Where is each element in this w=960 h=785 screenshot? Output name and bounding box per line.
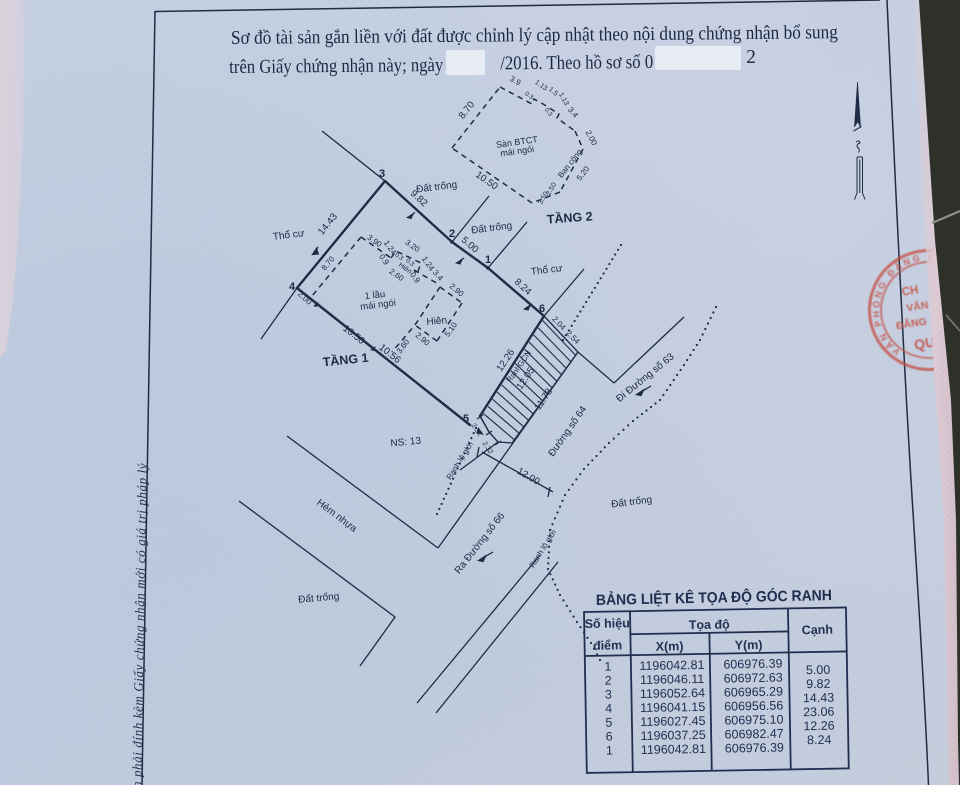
svg-text:6: 6 <box>539 303 545 315</box>
svg-text:/2016. Theo hồ sơ số 0: /2016. Theo hồ sơ số 0 <box>500 52 653 74</box>
svg-text:Y(m): Y(m) <box>735 638 763 652</box>
svg-text:1196037.25: 1196037.25 <box>640 728 705 743</box>
svg-text:Số hiệu: Số hiệu <box>585 616 630 631</box>
svg-text:5: 5 <box>605 716 612 730</box>
svg-text:Hiên: Hiên <box>426 315 447 328</box>
svg-text:23.06: 23.06 <box>803 705 835 720</box>
svg-text:12.26: 12.26 <box>803 719 835 734</box>
svg-text:điểm: điểm <box>593 638 622 653</box>
svg-text:1196042.81: 1196042.81 <box>639 658 704 673</box>
svg-text:1196027.45: 1196027.45 <box>640 714 705 729</box>
svg-text:606976.39: 606976.39 <box>723 657 782 672</box>
svg-text:1196052.64: 1196052.64 <box>640 686 705 701</box>
svg-text:1: 1 <box>606 744 613 758</box>
svg-text:606956.56: 606956.56 <box>724 699 783 714</box>
svg-text:4: 4 <box>605 702 612 716</box>
svg-text:5.00: 5.00 <box>806 663 831 677</box>
svg-text:6: 6 <box>606 730 613 744</box>
svg-text:X(m): X(m) <box>656 639 684 653</box>
svg-text:1196046.11: 1196046.11 <box>640 672 704 687</box>
svg-text:606972.63: 606972.63 <box>724 671 783 686</box>
svg-text:3: 3 <box>605 688 612 702</box>
svg-text:606976.39: 606976.39 <box>725 741 784 756</box>
svg-text:606982.47: 606982.47 <box>724 727 783 742</box>
svg-text:14.43: 14.43 <box>803 691 835 706</box>
svg-text:2: 2 <box>449 228 455 240</box>
svg-text:5: 5 <box>463 413 469 425</box>
svg-text:1: 1 <box>604 660 611 674</box>
svg-text:Tọa độ: Tọa độ <box>689 617 731 632</box>
svg-text:1196042.81: 1196042.81 <box>641 742 706 757</box>
svg-text:2: 2 <box>746 47 756 68</box>
svg-text:9.82: 9.82 <box>806 677 831 691</box>
svg-text:8.24: 8.24 <box>807 733 832 747</box>
svg-text:1196041.15: 1196041.15 <box>640 700 705 715</box>
svg-text:606965.29: 606965.29 <box>724 685 783 700</box>
svg-text:1: 1 <box>485 254 491 266</box>
svg-text:606975.10: 606975.10 <box>724 713 783 728</box>
svg-text:trên Giấy chứng nhận này; ngày: trên Giấy chứng nhận này; ngày <box>229 55 443 78</box>
svg-text:CH: CH <box>901 284 919 298</box>
svg-text:Cạnh: Cạnh <box>802 623 833 638</box>
svg-text:2: 2 <box>605 674 612 688</box>
